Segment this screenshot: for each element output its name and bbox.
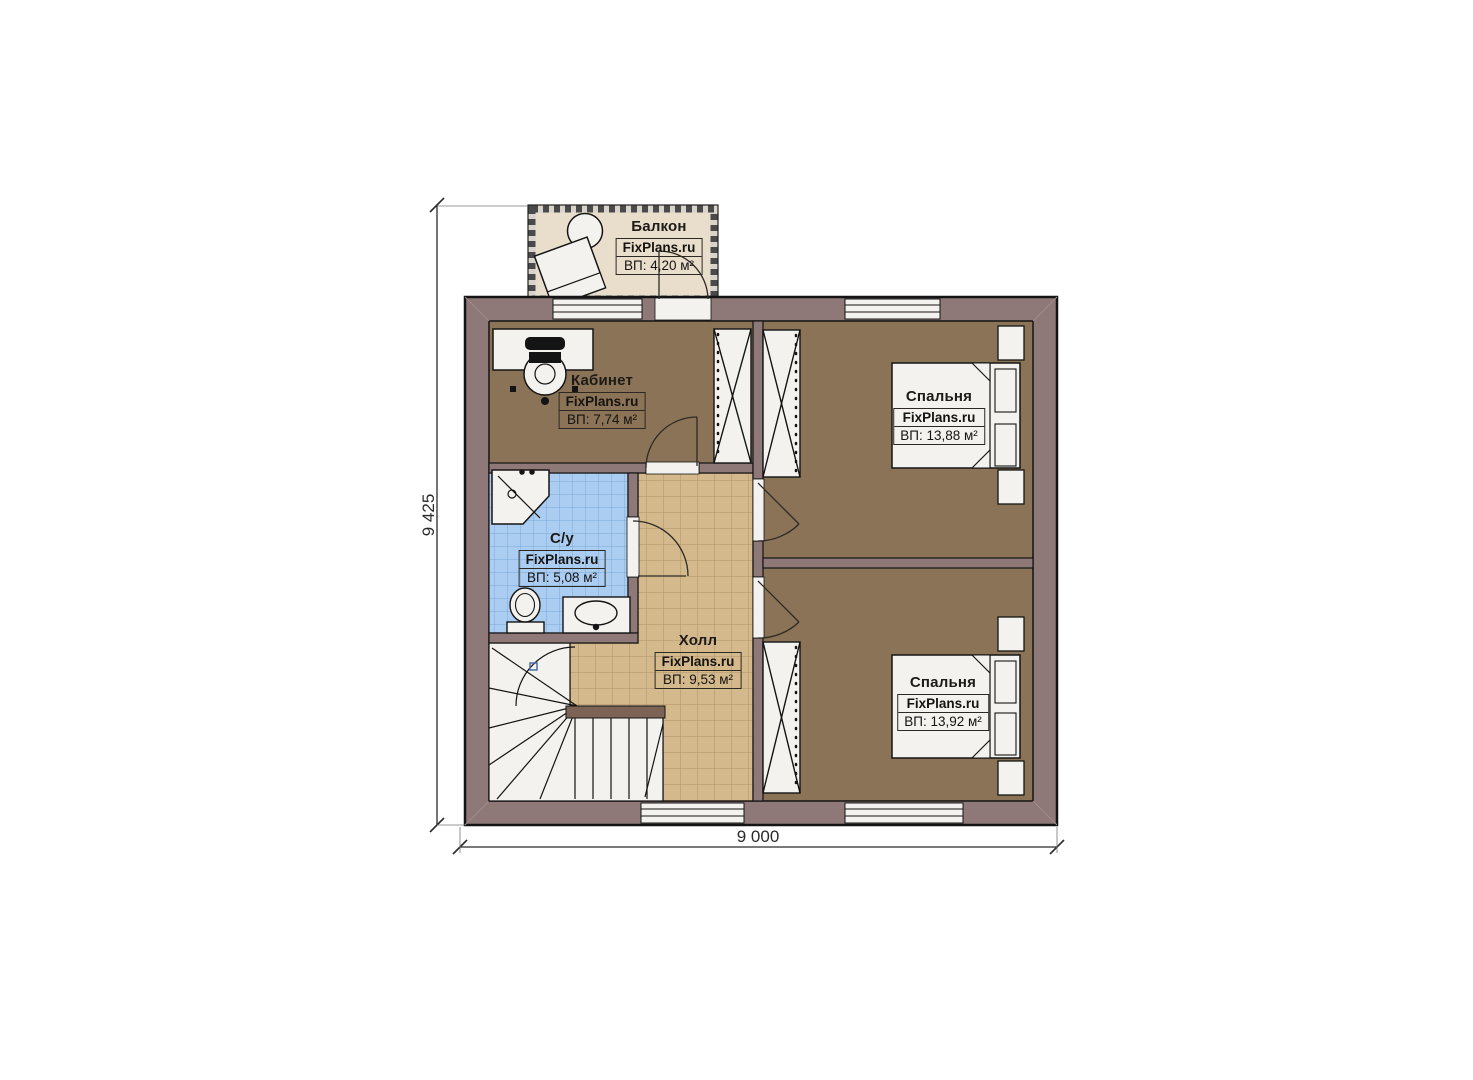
floor-plan-canvas: Балкон FixPlans.ru ВП: 4,20 м² Кабинет F…	[0, 0, 1473, 1080]
floor-plan-drawing	[0, 0, 1473, 1080]
dimension-label-width: 9 000	[737, 827, 780, 847]
nightstand	[998, 761, 1024, 795]
pillow	[995, 424, 1016, 466]
nightstand	[998, 617, 1024, 651]
balcony	[528, 205, 718, 307]
window-bottom-bedroom	[845, 803, 963, 823]
wardrobe-bedroom-top	[763, 330, 800, 477]
nightstand	[998, 326, 1024, 360]
nightstand	[998, 470, 1024, 504]
pillow	[995, 369, 1016, 412]
wardrobe-bedroom-bottom	[763, 642, 800, 793]
window-bottom-hall	[641, 803, 744, 823]
pillow	[995, 713, 1016, 755]
dimension-label-height: 9 425	[419, 494, 439, 537]
window-top-bedroom	[845, 299, 940, 319]
sink-vanity	[563, 597, 630, 633]
pillow	[995, 661, 1016, 703]
wardrobe-office	[714, 329, 751, 463]
window-top-left	[553, 299, 642, 319]
